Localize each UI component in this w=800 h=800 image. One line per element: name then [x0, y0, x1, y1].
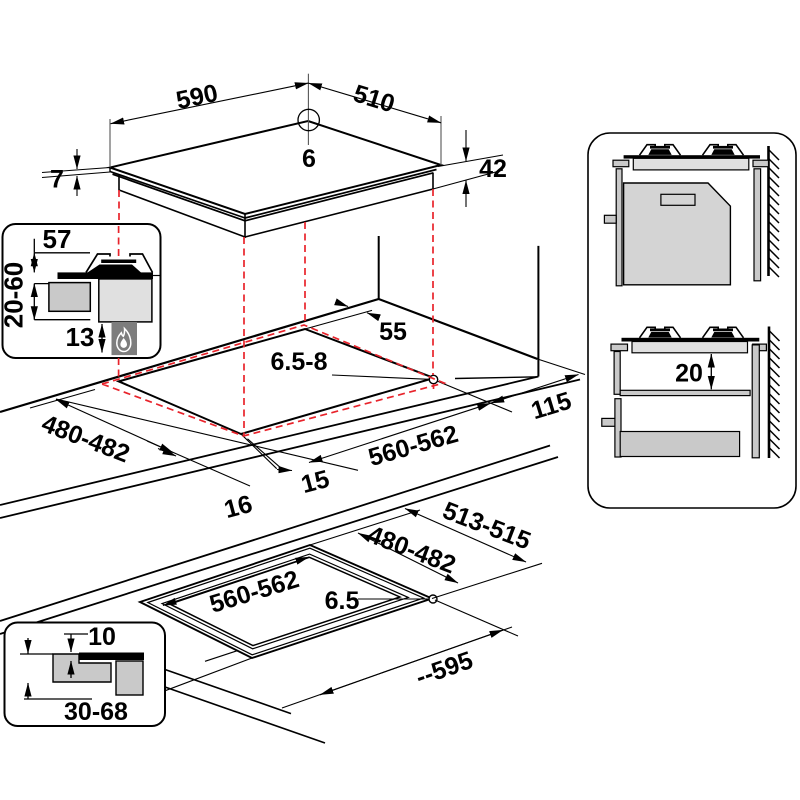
- svg-text:57: 57: [43, 224, 72, 254]
- svg-text:6: 6: [302, 145, 316, 173]
- svg-text:55: 55: [379, 318, 407, 346]
- svg-text:6.5-8: 6.5-8: [271, 348, 328, 376]
- svg-text:7: 7: [50, 166, 64, 194]
- svg-text:30-68: 30-68: [64, 698, 128, 726]
- svg-text:6.5: 6.5: [325, 587, 360, 615]
- svg-text:13: 13: [66, 322, 95, 352]
- svg-text:10: 10: [88, 623, 116, 651]
- svg-text:20-60: 20-60: [0, 262, 29, 329]
- svg-text:42: 42: [479, 155, 507, 183]
- svg-text:20: 20: [675, 360, 703, 388]
